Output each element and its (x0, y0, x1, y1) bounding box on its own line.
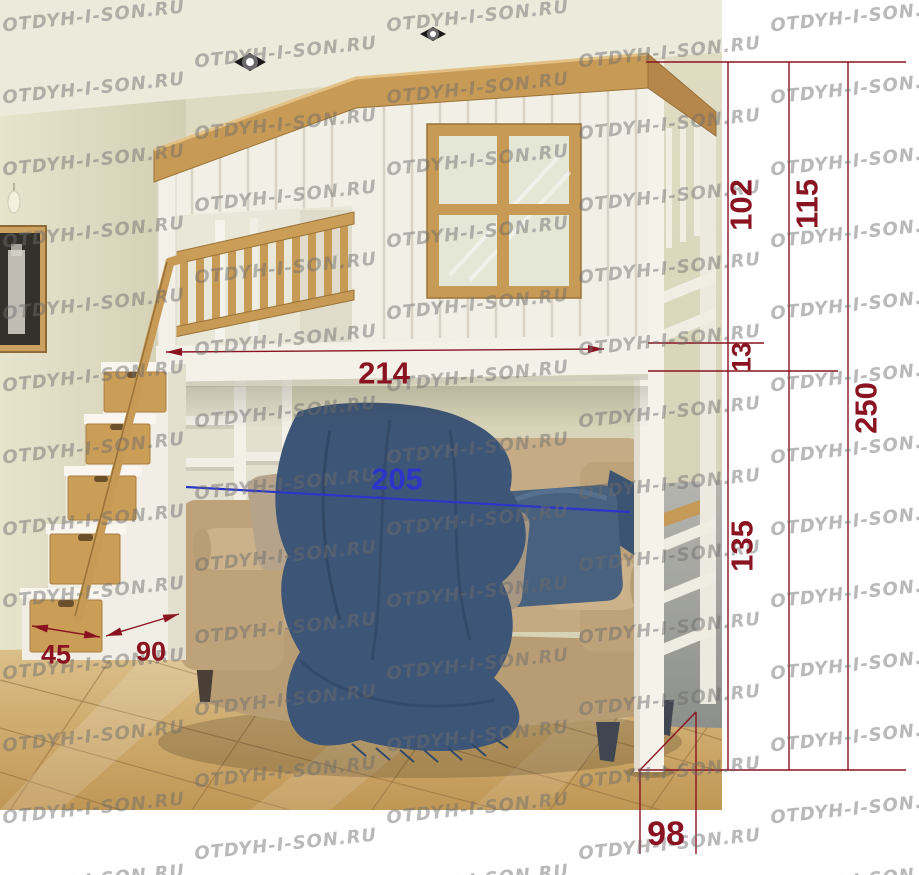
window-frame (427, 124, 581, 298)
picture-frame (0, 226, 46, 352)
blue-blanket (275, 403, 525, 762)
room-illustration (0, 0, 919, 875)
left-front-post (158, 160, 176, 352)
annotated-furniture-image: OTDYH-I-SON.RUOTDYH-I-SON.RUOTDYH-I-SON.… (0, 0, 919, 875)
